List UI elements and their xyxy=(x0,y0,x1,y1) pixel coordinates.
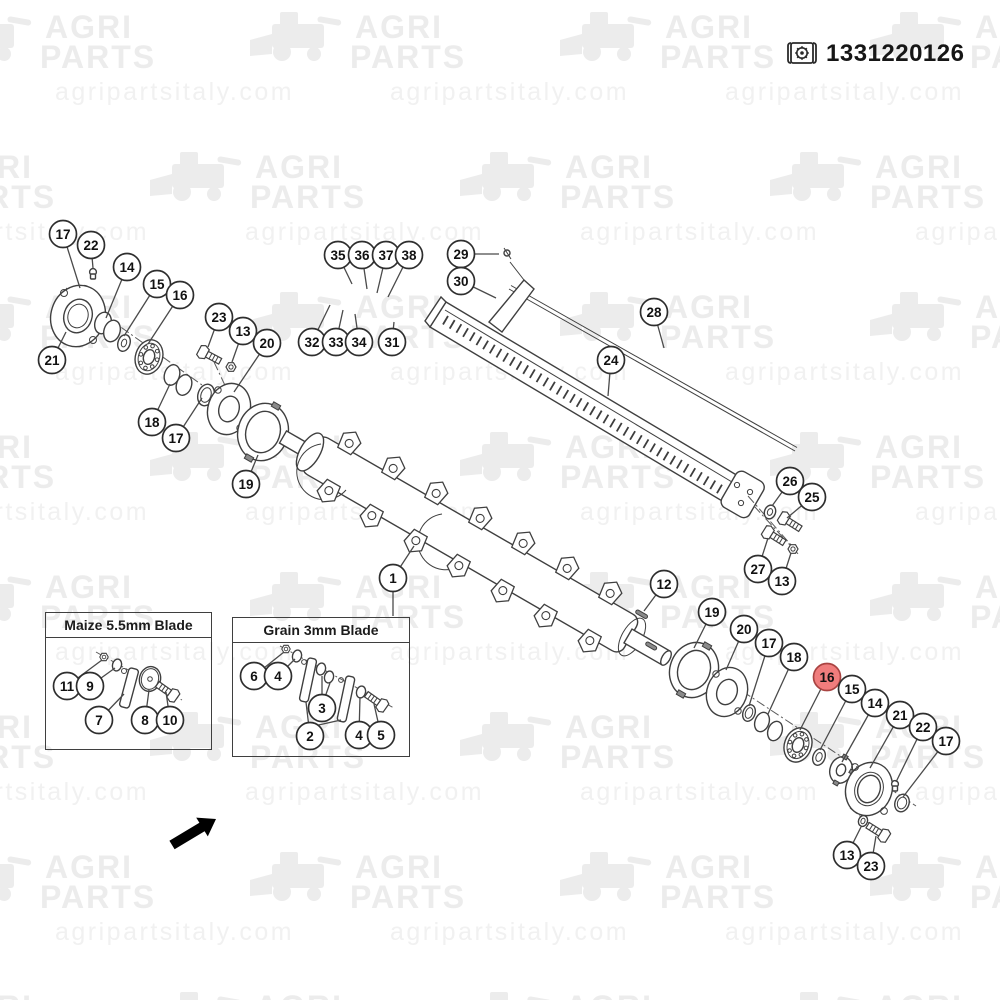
callout-label: 15 xyxy=(149,277,165,292)
callout-1[interactable]: 1 xyxy=(380,546,415,592)
callout-label: 10 xyxy=(162,713,177,728)
part-number: 1331220126 xyxy=(826,40,964,68)
callout-23[interactable]: 23 xyxy=(858,836,885,880)
callout-35[interactable]: 35 xyxy=(325,242,353,285)
callout-label: 17 xyxy=(55,227,70,242)
callout-label: 7 xyxy=(95,713,103,728)
callout-label: 19 xyxy=(704,605,719,620)
callout-20[interactable]: 20 xyxy=(726,616,758,671)
callout-label: 37 xyxy=(378,248,393,263)
parts-diagram-page: AGRIPARTSAGRIPARTSAGRIPARTSAGRIPARTSagri… xyxy=(0,0,1000,1000)
callout-21[interactable]: 21 xyxy=(39,332,67,374)
callout-label: 4 xyxy=(355,728,363,743)
callout-37[interactable]: 37 xyxy=(373,242,400,294)
callout-30[interactable]: 30 xyxy=(448,268,497,299)
callout-label: 22 xyxy=(915,720,930,735)
callout-label: 13 xyxy=(774,574,790,589)
callout-label: 23 xyxy=(211,310,227,325)
callout-label: 25 xyxy=(804,490,820,505)
callout-label: 14 xyxy=(119,260,135,275)
callout-label: 19 xyxy=(238,477,253,492)
callout-label: 17 xyxy=(168,431,183,446)
callout-label: 24 xyxy=(603,353,619,368)
callout-label: 8 xyxy=(141,713,149,728)
callout-13[interactable]: 13 xyxy=(230,318,257,363)
callout-18[interactable]: 18 xyxy=(139,384,171,436)
callout-label: 21 xyxy=(892,708,908,723)
callout-5[interactable]: 5 xyxy=(368,704,395,749)
callout-17[interactable]: 17 xyxy=(50,221,81,289)
callout-label: 15 xyxy=(844,682,860,697)
callout-label: 22 xyxy=(83,238,98,253)
callout-label: 38 xyxy=(401,248,417,263)
callout-23[interactable]: 23 xyxy=(206,304,233,348)
callout-label: 36 xyxy=(354,248,370,263)
callout-27[interactable]: 27 xyxy=(745,538,772,583)
callout-label: 34 xyxy=(351,335,367,350)
callout-label: 32 xyxy=(304,335,319,350)
callout-label: 18 xyxy=(786,650,802,665)
callout-36[interactable]: 36 xyxy=(349,242,376,290)
callout-label: 18 xyxy=(144,415,160,430)
callout-label: 16 xyxy=(172,288,188,303)
callout-label: 21 xyxy=(44,353,60,368)
callout-label: 27 xyxy=(750,562,765,577)
callout-label: 12 xyxy=(656,577,671,592)
callout-13[interactable]: 13 xyxy=(769,553,796,595)
callout-9[interactable]: 9 xyxy=(77,668,116,700)
callout-label: 1 xyxy=(389,571,397,586)
callout-8[interactable]: 8 xyxy=(132,690,159,734)
callout-label: 30 xyxy=(453,274,468,289)
callout-label: 6 xyxy=(250,669,258,684)
callout-label: 5 xyxy=(377,728,385,743)
callout-label: 4 xyxy=(274,669,282,684)
callout-label: 13 xyxy=(839,848,855,863)
callout-layer: 1722141516212313201817193536373832333431… xyxy=(0,0,1000,1000)
callout-33[interactable]: 33 xyxy=(323,310,350,356)
callout-label: 33 xyxy=(328,335,344,350)
technical-drawing-icon xyxy=(786,40,818,68)
callout-label: 20 xyxy=(259,336,274,351)
callout-19[interactable]: 19 xyxy=(233,455,260,498)
callout-label: 16 xyxy=(819,670,835,685)
callout-label: 23 xyxy=(863,859,879,874)
part-number-header: 1331220126 xyxy=(786,40,964,68)
callout-10[interactable]: 10 xyxy=(157,692,184,734)
callout-16[interactable]: 16 xyxy=(800,664,841,731)
callout-29[interactable]: 29 xyxy=(448,241,500,268)
callout-label: 17 xyxy=(938,734,953,749)
callout-label: 29 xyxy=(453,247,468,262)
callout-14[interactable]: 14 xyxy=(106,254,141,319)
callout-31[interactable]: 31 xyxy=(379,322,406,356)
callout-28[interactable]: 28 xyxy=(641,299,668,349)
callout-label: 9 xyxy=(86,679,94,694)
callout-label: 13 xyxy=(235,324,251,339)
callout-label: 26 xyxy=(782,474,798,489)
callout-label: 11 xyxy=(60,679,75,694)
callout-34[interactable]: 34 xyxy=(346,314,373,356)
callout-19[interactable]: 19 xyxy=(694,599,726,649)
callout-label: 35 xyxy=(330,248,346,263)
callout-3[interactable]: 3 xyxy=(309,676,336,722)
callout-label: 20 xyxy=(736,622,751,637)
callout-22[interactable]: 22 xyxy=(78,232,105,269)
callout-label: 2 xyxy=(306,729,314,744)
callout-12[interactable]: 12 xyxy=(644,571,678,612)
callout-13[interactable]: 13 xyxy=(834,827,862,869)
callout-label: 14 xyxy=(867,696,883,711)
callout-label: 28 xyxy=(646,305,662,320)
callout-17[interactable]: 17 xyxy=(163,398,203,452)
callout-label: 3 xyxy=(318,701,326,716)
callout-24[interactable]: 24 xyxy=(598,347,625,397)
callout-label: 17 xyxy=(761,636,776,651)
callout-label: 31 xyxy=(384,335,400,350)
